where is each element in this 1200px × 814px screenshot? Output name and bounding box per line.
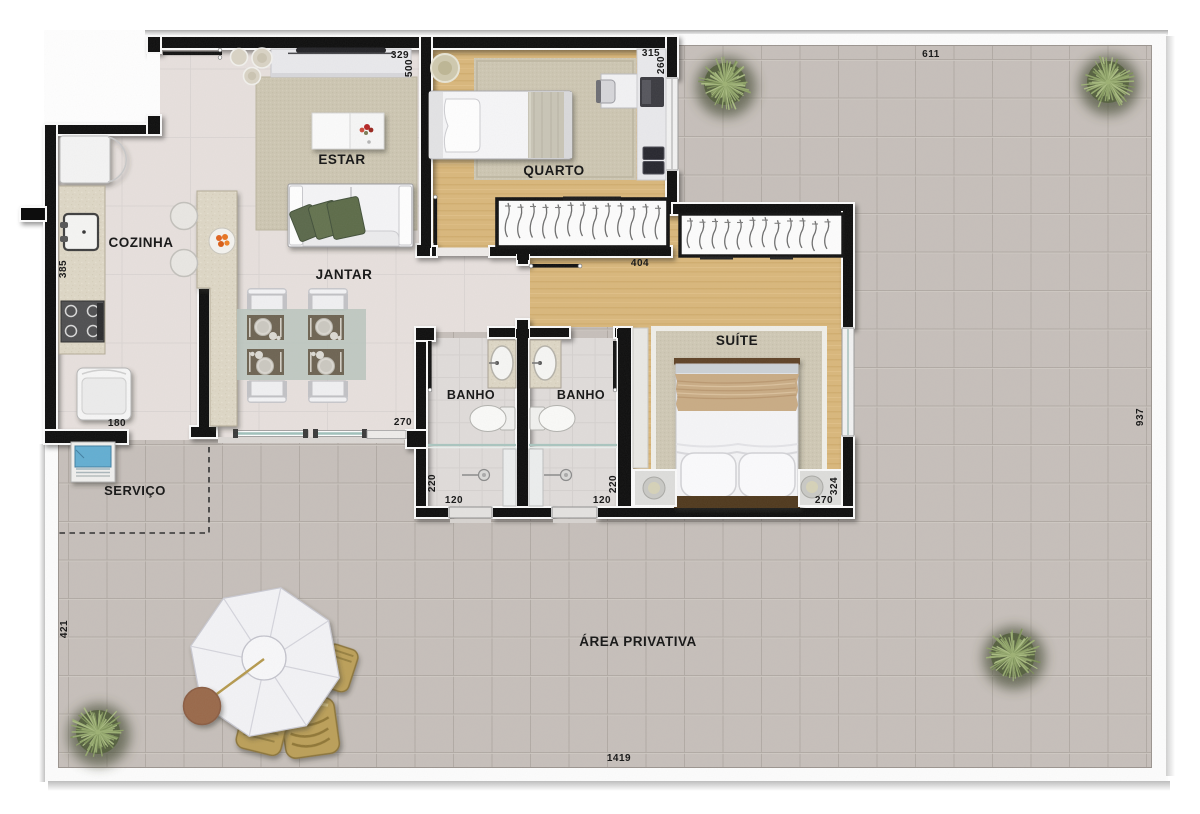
svg-text:BANHO: BANHO xyxy=(447,388,495,402)
svg-text:220: 220 xyxy=(427,474,438,492)
svg-text:324: 324 xyxy=(829,477,840,495)
svg-text:COZINHA: COZINHA xyxy=(109,235,174,250)
svg-text:500: 500 xyxy=(404,59,415,77)
svg-text:QUARTO: QUARTO xyxy=(523,163,584,178)
svg-text:SERVIÇO: SERVIÇO xyxy=(104,483,166,498)
svg-text:404: 404 xyxy=(631,258,649,269)
svg-text:BANHO: BANHO xyxy=(557,388,605,402)
svg-text:180: 180 xyxy=(108,418,126,429)
svg-text:937: 937 xyxy=(1135,408,1146,426)
svg-text:120: 120 xyxy=(445,495,463,506)
svg-text:611: 611 xyxy=(922,49,940,60)
svg-text:385: 385 xyxy=(58,260,69,278)
svg-text:260: 260 xyxy=(656,56,667,74)
svg-text:270: 270 xyxy=(815,495,833,506)
svg-text:421: 421 xyxy=(59,620,70,638)
svg-text:270: 270 xyxy=(394,417,412,428)
svg-text:1419: 1419 xyxy=(607,753,631,764)
svg-text:ÁREA PRIVATIVA: ÁREA PRIVATIVA xyxy=(579,634,697,649)
svg-text:ESTAR: ESTAR xyxy=(318,152,365,167)
svg-text:JANTAR: JANTAR xyxy=(316,267,373,282)
svg-text:SUÍTE: SUÍTE xyxy=(716,333,758,348)
svg-text:220: 220 xyxy=(608,475,619,493)
svg-text:120: 120 xyxy=(593,495,611,506)
